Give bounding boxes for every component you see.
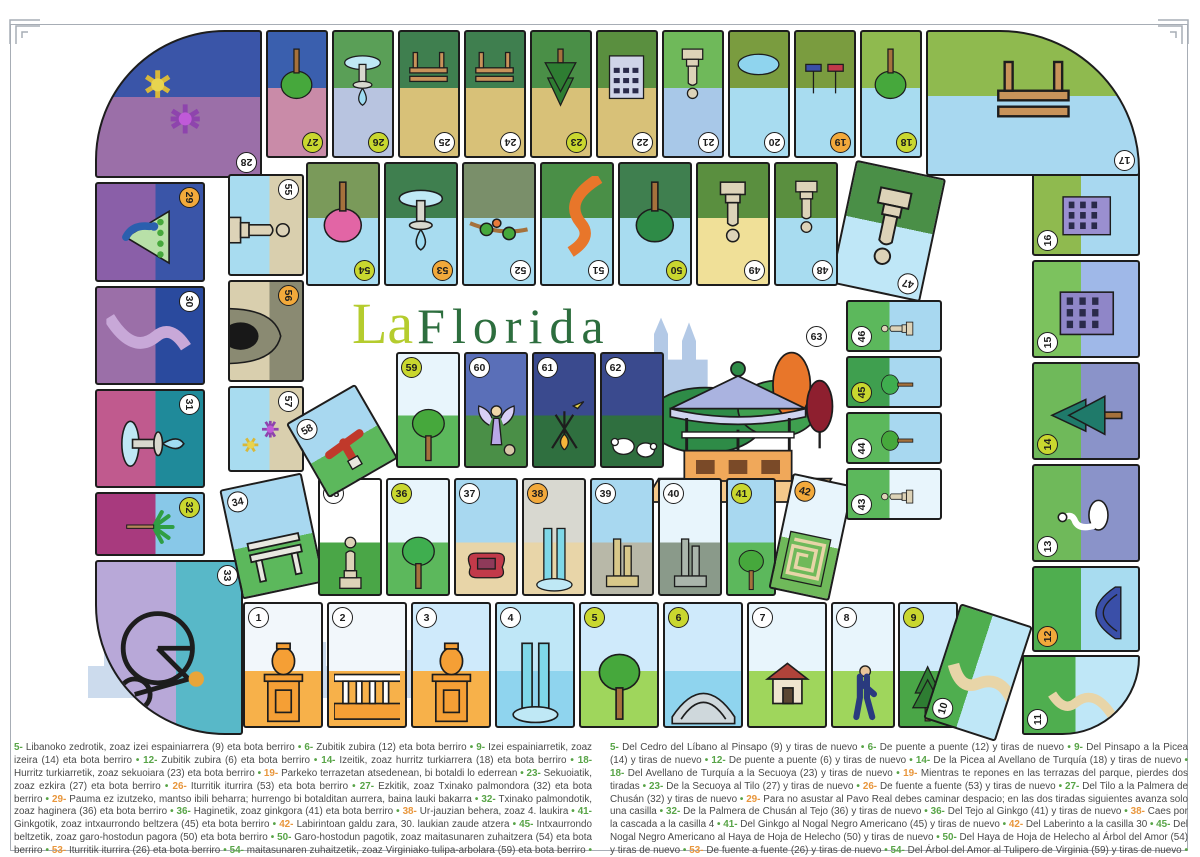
kiosco-illustration [640,278,850,511]
cell-24-banco[interactable]: 24 [464,30,526,158]
cell-55-estatua-rocas[interactable]: 55 [228,174,304,276]
cell-number-badge: 46 [851,326,872,347]
cell-52-rama-estanque[interactable]: 52 [462,162,536,286]
cell-7-caseta[interactable]: 7 [747,602,827,728]
cell-number-badge: 26 [368,132,389,153]
cell-13-cisne[interactable]: 13 [1032,464,1140,562]
cell-number-badge: 36 [391,483,412,504]
cell-number-badge: 1 [248,607,269,628]
cell-50-haya-de-hoja-de-helecho[interactable]: 50 [618,162,692,286]
cell-number-badge: 62 [605,357,626,378]
rules-spanish-text: 5- Del Cedro del Líbano al Pinsapo (9) y… [610,742,1188,857]
cell-30-paseo-nocturno[interactable]: 30 [95,286,205,385]
cell-number-badge: 11 [1027,709,1048,730]
cell-number-badge: 59 [401,357,422,378]
cell-3-pilar[interactable]: 3 [411,602,491,728]
cell-45-nogal-negro-americano[interactable]: 45 [846,356,942,408]
cell-4-estanque-cascada[interactable]: 4 [495,602,575,728]
cell-16-edificio[interactable]: 16 [1032,168,1140,256]
cell-22-palacete[interactable]: 22 [596,30,658,158]
cell-11-senda-rio[interactable]: 11 [1022,655,1140,735]
cell-number-badge: 31 [179,394,200,415]
bandstand-railing [682,432,794,438]
cell-31-fuente-nocturna[interactable]: 31 [95,389,205,488]
cell-37-sofa-escultura[interactable]: 37 [454,478,518,596]
cell-26-fuente[interactable]: 26 [332,30,394,158]
cell-number-badge: 24 [500,132,521,153]
cell-number-badge: 51 [588,260,609,281]
cell-number-badge: 60 [469,357,490,378]
cell-36-tejo[interactable]: 36 [386,478,450,596]
cell-49-estatua[interactable]: 49 [696,162,770,286]
cell-number-badge: 3 [416,607,437,628]
rules-basque-text: 5- Libanoko zedrotik, zoaz izei espainia… [14,742,592,857]
cell-29-pavo-real[interactable]: 29 [95,182,205,282]
cell-number-badge: 30 [179,291,200,312]
cell-56-gruta[interactable]: 56 [228,280,304,382]
cell-2-barandilla[interactable]: 2 [327,602,407,728]
cell-number-badge: 5 [584,607,605,628]
cell-number-badge: 43 [851,494,872,515]
title-florida: Florida [417,298,610,354]
cell-number-badge: 40 [663,483,684,504]
cell-number-badge: 13 [1037,536,1058,557]
cell-59-tulipero-de-virginia[interactable]: 59 [396,352,460,468]
cell-27-tilo[interactable]: 27 [266,30,328,158]
cell-25-banco[interactable]: 25 [398,30,460,158]
cell-number-badge: 33 [217,565,238,586]
cell-number-badge: 2 [332,607,353,628]
cell-46-estatua[interactable]: 46 [846,300,942,352]
cell-number-badge: 56 [278,285,299,306]
board-title: LaFlorida [352,290,611,357]
cell-32-palmera-de-chusan[interactable]: 32 [95,492,205,556]
cell-number-badge: 63 [806,326,827,347]
cell-6-puente[interactable]: 6 [663,602,743,728]
cell-number-badge: 49 [744,260,765,281]
cell-17-merendero[interactable]: 17 [926,30,1140,176]
cell-number-badge: 52 [510,260,531,281]
cell-number-badge: 22 [632,132,653,153]
cell-number-badge: 45 [851,382,872,403]
cell-48-estatua[interactable]: 48 [774,162,838,286]
red-tree [807,381,833,432]
cell-number-badge: 8 [836,607,857,628]
bench-icon [928,32,1138,174]
cell-number-badge: 29 [179,187,200,208]
cell-12-puente-azul[interactable]: 12 [1032,566,1140,652]
cell-number-badge: 50 [666,260,687,281]
cell-number-badge: 38 [527,483,548,504]
cell-number-badge: 37 [459,483,480,504]
cell-41-ginkgo[interactable]: 41 [726,478,776,596]
cell-54-arbol-del-amor[interactable]: 54 [306,162,380,286]
frame-corner-ornament [1156,12,1190,46]
cell-21-estatua[interactable]: 21 [662,30,724,158]
cell-number-badge: 6 [668,607,689,628]
cell-number-badge: 32 [179,497,200,518]
cell-number-badge: 16 [1037,230,1058,251]
flowers-icon [97,32,260,176]
cell-number-badge: 7 [752,607,773,628]
cell-number-badge: 28 [236,152,257,173]
cell-60-angel[interactable]: 60 [464,352,528,468]
cell-63-kiosco[interactable] [640,278,850,483]
cell-number-badge: 21 [698,132,719,153]
cell-18-avellano-de-turquia[interactable]: 18 [860,30,922,158]
frame-corner-ornament [8,12,42,46]
cell-14-picea[interactable]: 14 [1032,362,1140,460]
cell-number-badge: 54 [354,260,375,281]
cell-number-badge: 61 [537,357,558,378]
cell-40-monumento[interactable]: 40 [658,478,722,596]
cell-19-terrazas-embarcadero[interactable]: 19 [794,30,856,158]
cell-number-badge: 41 [731,483,752,504]
cell-23-secuoya[interactable]: 23 [530,30,592,158]
cell-number-badge: 14 [1037,434,1058,455]
cell-20-estanque[interactable]: 20 [728,30,790,158]
cell-15-edificio-flores[interactable]: 15 [1032,260,1140,358]
cell-8-paseante[interactable]: 8 [831,602,895,728]
cell-53-fuente[interactable]: 53 [384,162,458,286]
cell-number-badge: 20 [764,132,785,153]
cell-number-badge: 18 [896,132,917,153]
cell-number-badge: 12 [1037,626,1058,647]
cell-33-biciclo[interactable]: 33 [95,560,243,735]
cell-number-badge: 17 [1114,150,1135,171]
cell-number-badge: 25 [434,132,455,153]
cell-43-estatua[interactable]: 43 [846,468,942,520]
cell-number-badge: 23 [566,132,587,153]
cell-62-ovejas[interactable]: 62 [600,352,664,468]
cell-number-badge: 57 [278,391,299,412]
cell-38-cascada[interactable]: 38 [522,478,586,596]
cell-number-badge: 4 [500,607,521,628]
cell-number-badge: 48 [812,260,833,281]
cell-61-hoguera[interactable]: 61 [532,352,596,468]
la-florida-game-board-poster: 1234567891011121314151617181920212223242… [0,0,1200,857]
title-la: La [352,291,413,356]
cell-1-pilar-entrada[interactable]: 1 [243,602,323,728]
cell-number-badge: 9 [903,607,924,628]
bicycle-icon [97,562,241,733]
cell-5-cedro-del-libano[interactable]: 5 [579,602,659,728]
cell-number-badge: 27 [302,132,323,153]
cell-number-badge: 19 [830,132,851,153]
cell-number-badge: 44 [851,438,872,459]
cell-number-badge: 53 [432,260,453,281]
cell-28-parterres[interactable]: 28 [95,30,262,178]
cell-number-badge: 55 [278,179,299,200]
cell-number-badge: 39 [595,483,616,504]
cell-39-escultura[interactable]: 39 [590,478,654,596]
cell-51-senda-naranja[interactable]: 51 [540,162,614,286]
cell-44-arboles-senda[interactable]: 44 [846,412,942,464]
cell-number-badge: 15 [1037,332,1058,353]
